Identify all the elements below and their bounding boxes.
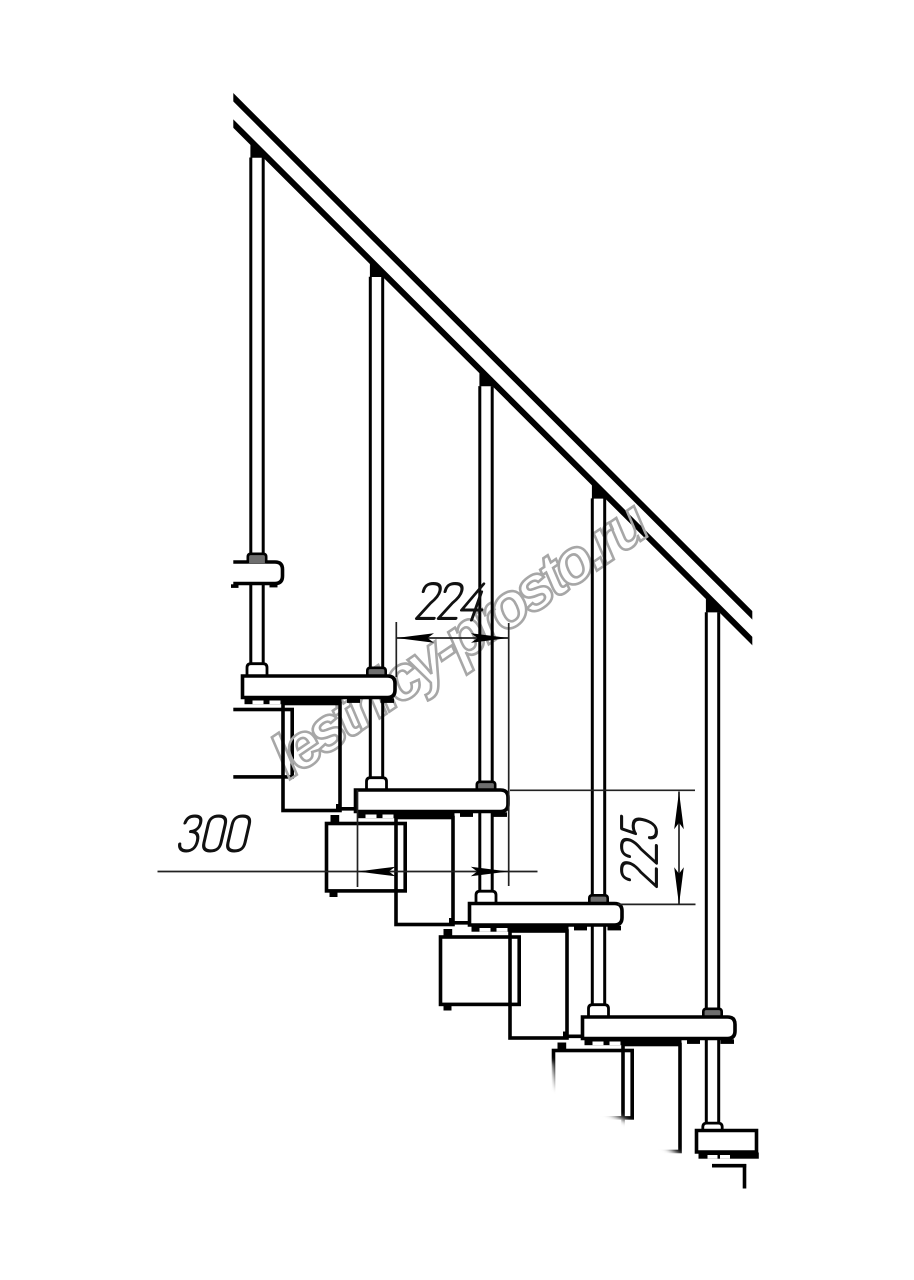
svg-text:lestnicy-prosto.ru: lestnicy-prosto.ru [258,487,660,791]
